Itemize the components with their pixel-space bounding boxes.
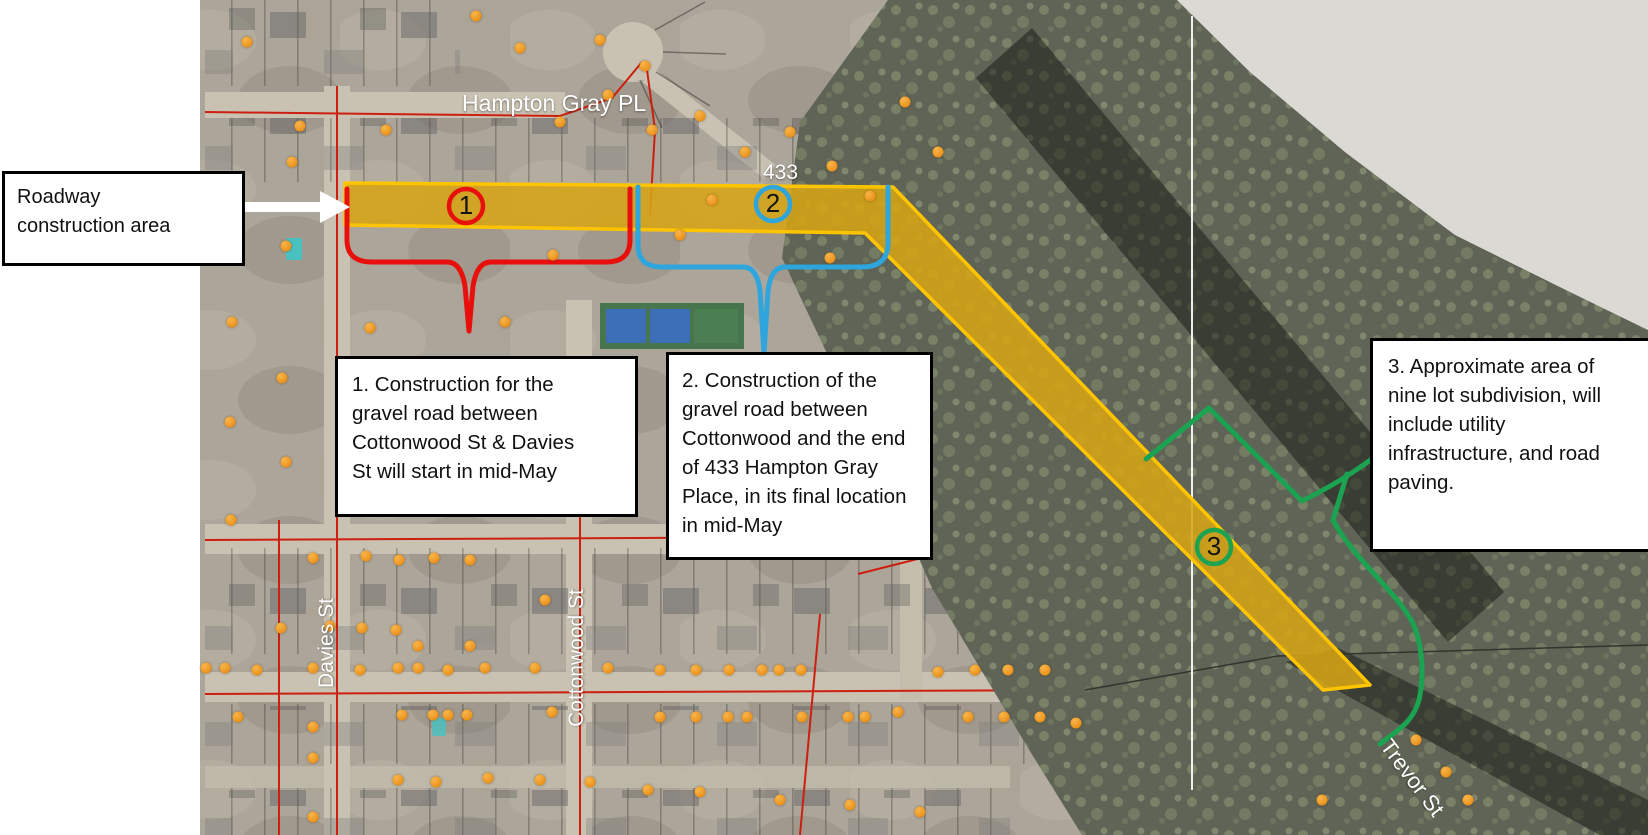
note3-text: 3. Approximate area of nine lot subdivis… (1388, 352, 1644, 497)
roadway-callout-box: Roadway construction area (2, 171, 245, 266)
note3-callout-box: 3. Approximate area of nine lot subdivis… (1370, 338, 1648, 552)
street-label-hampton-gray-pl: Hampton Gray PL (462, 90, 646, 117)
note2-callout-box: 2. Construction of the gravel road betwe… (666, 352, 933, 560)
construction-map-page: Hampton Gray PL 433 Davies St Cottonwood… (0, 0, 1648, 835)
marker1-number: 1 (459, 192, 473, 218)
note1-callout-box: 1. Construction for the gravel road betw… (335, 356, 638, 517)
note2-text: 2. Construction of the gravel road betwe… (682, 366, 917, 540)
marker3-number: 3 (1207, 533, 1221, 559)
note1-text: 1. Construction for the gravel road betw… (352, 370, 621, 486)
roadway-callout-text: Roadway construction area (17, 183, 230, 241)
street-label-davies-st: Davies St (315, 598, 339, 688)
street-label-cottonwood-st: Cottonwood St (565, 589, 589, 727)
address-label-433: 433 (763, 161, 798, 185)
marker2-number: 2 (766, 190, 780, 216)
